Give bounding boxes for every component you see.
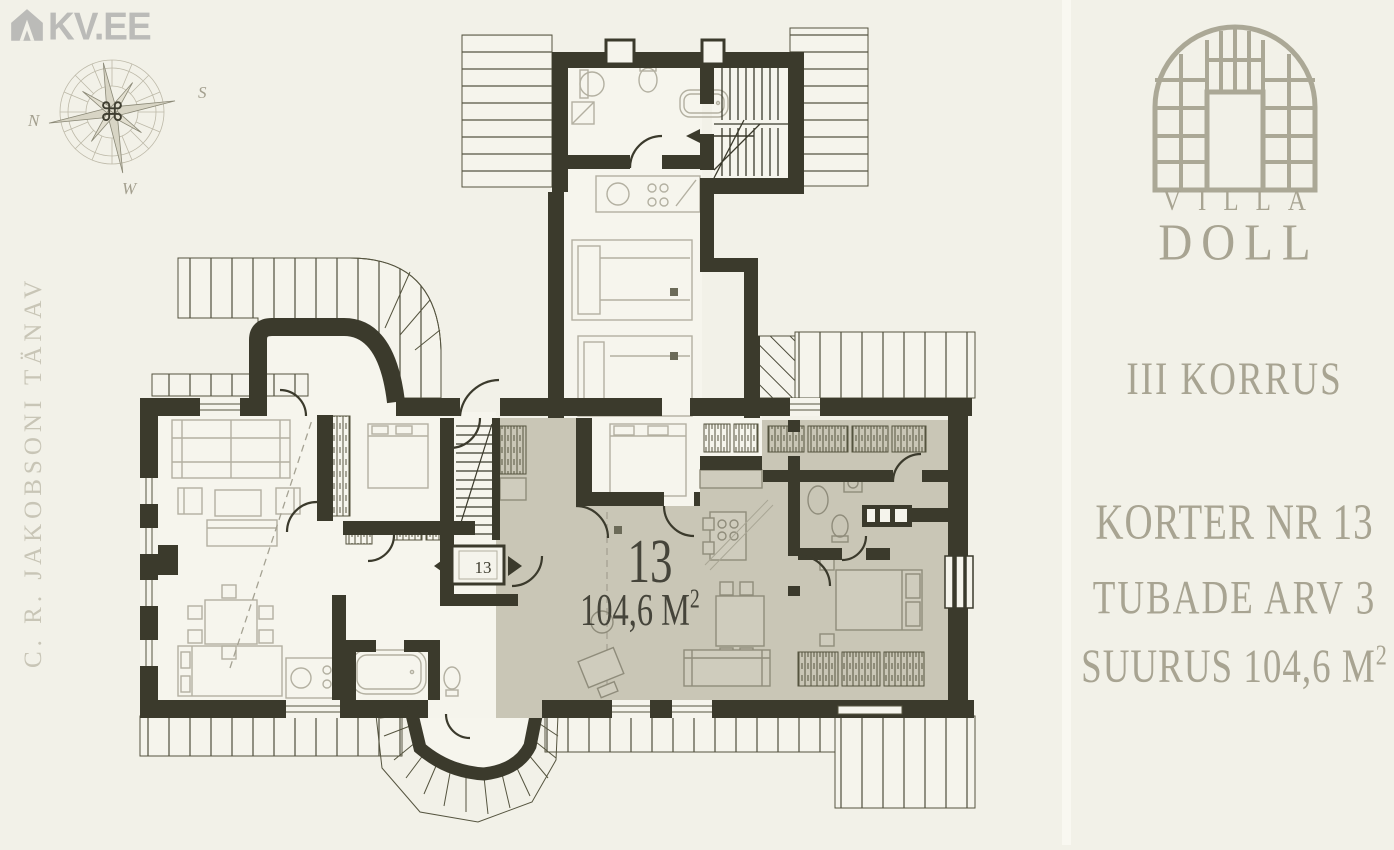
roof-right-band — [745, 332, 975, 398]
floorplan-svg: 13 13 104,6 M2 — [0, 0, 1075, 845]
wall-niches — [867, 509, 907, 522]
size-label-text: SUURUS 104,6 M — [1081, 640, 1376, 693]
roof-bottom-right-band — [835, 716, 975, 808]
roof-bottom-center-band — [545, 716, 835, 752]
floorplan-image: 13 13 104,6 M2 — [0, 0, 1075, 845]
info-panel: VILLA DOLL III KORRUS KORTER NR 13 TUBAD… — [1075, 0, 1394, 845]
roof-bottom-left-band — [140, 716, 402, 756]
kv-house-icon — [8, 6, 46, 46]
kv-logo: KV.EE — [8, 6, 151, 46]
kv-logo-text: KV.EE — [48, 7, 151, 46]
roof-left-band — [152, 374, 308, 396]
size-label: SUURUS 104,6 M2 — [1075, 639, 1394, 695]
compass-center-ornament: ⌘ — [99, 98, 125, 127]
compass-south-label: S — [198, 83, 207, 102]
street-name-label: C. R. JAKOBSONI TÄNAV — [20, 338, 54, 668]
villa-doll-arch-icon — [1145, 22, 1325, 197]
panel-divider — [1062, 0, 1071, 845]
floorplan-page: { "site": { "logo_text": "KV.EE" }, "com… — [0, 0, 1394, 845]
villa-doll-logo-word2: DOLL — [1075, 213, 1394, 272]
entry-number-label: 13 — [475, 558, 492, 577]
size-label-sup: 2 — [1376, 639, 1388, 672]
compass-west-label: W — [122, 179, 138, 198]
compass-north-label: N — [27, 111, 41, 130]
apartment-label: KORTER NR 13 — [1075, 493, 1394, 552]
apartment-area-text: 104,6 M2 — [580, 585, 700, 636]
floor-label: III KORRUS — [1075, 353, 1394, 407]
rooms-count-label: TUBADE ARV 3 — [1075, 571, 1394, 627]
roof-top-left-of-tower — [462, 35, 552, 187]
